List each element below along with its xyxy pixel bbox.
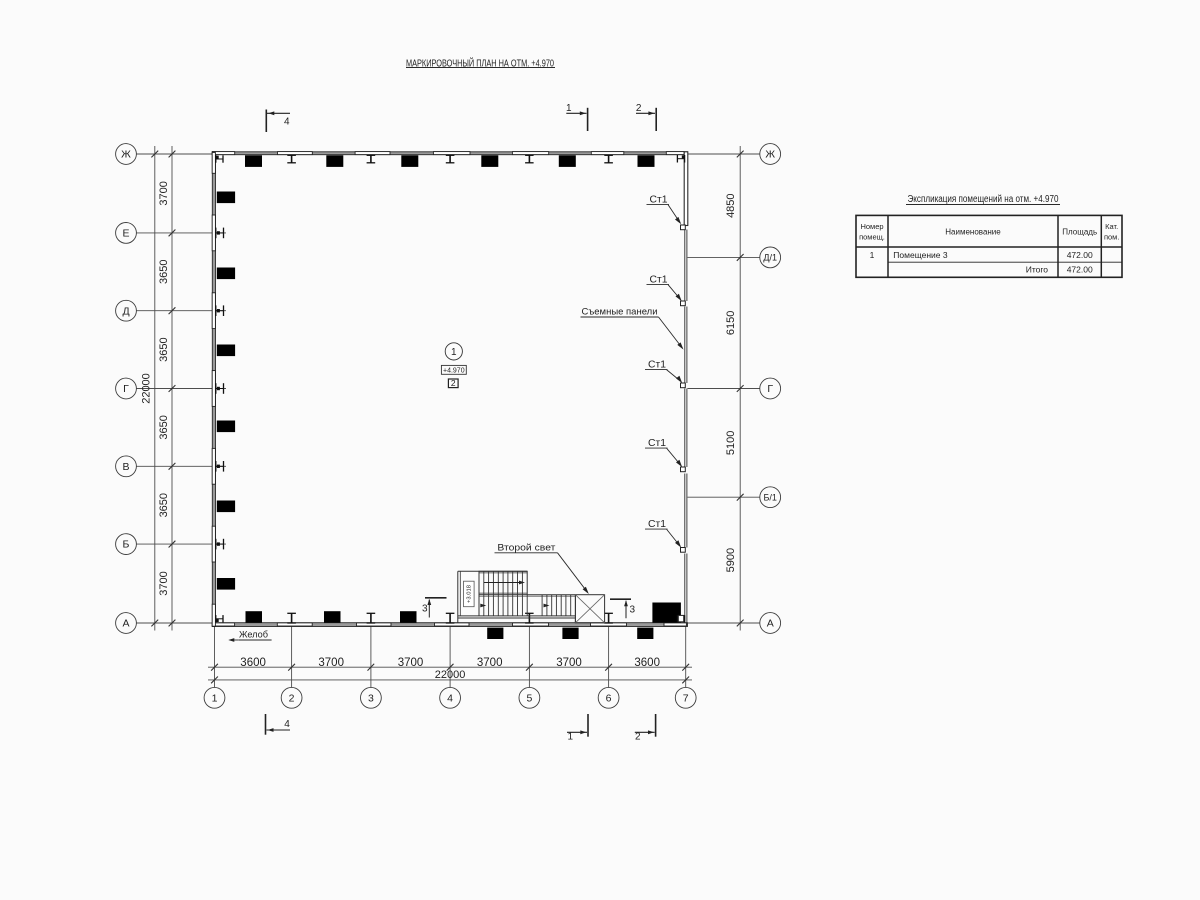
svg-text:Помещение 3: Помещение 3	[893, 250, 948, 260]
svg-text:2: 2	[289, 692, 295, 704]
svg-text:4: 4	[447, 692, 453, 704]
svg-text:3700: 3700	[556, 657, 582, 669]
svg-text:Д/1: Д/1	[763, 253, 777, 263]
svg-text:3700: 3700	[158, 571, 170, 595]
svg-text:3700: 3700	[477, 657, 503, 669]
svg-text:5900: 5900	[725, 548, 737, 572]
svg-text:А: А	[122, 618, 129, 630]
svg-text:3650: 3650	[158, 337, 170, 361]
svg-text:1: 1	[212, 692, 218, 704]
svg-text:3650: 3650	[158, 260, 170, 284]
svg-text:В: В	[122, 461, 129, 473]
svg-text:3650: 3650	[158, 493, 170, 517]
svg-text:Экспликация помещений на отм.: Экспликация помещений на отм. +4.970	[908, 194, 1059, 205]
svg-text:Д: Д	[122, 305, 129, 317]
svg-text:3: 3	[368, 692, 374, 704]
svg-text:2: 2	[635, 732, 641, 743]
svg-text:1: 1	[568, 732, 574, 743]
svg-text:+3.018: +3.018	[466, 585, 472, 603]
svg-text:3: 3	[630, 605, 636, 616]
svg-text:Ст1: Ст1	[648, 518, 666, 530]
svg-text:4: 4	[284, 719, 290, 730]
svg-text:472.00: 472.00	[1067, 250, 1093, 260]
svg-text:Г: Г	[123, 383, 129, 395]
svg-text:Г: Г	[767, 383, 773, 395]
svg-text:Кат.: Кат.	[1105, 222, 1118, 231]
svg-text:2: 2	[636, 103, 642, 114]
svg-text:5100: 5100	[725, 431, 737, 455]
svg-text:7: 7	[683, 692, 689, 704]
svg-text:1: 1	[566, 103, 572, 114]
svg-text:472.00: 472.00	[1067, 265, 1093, 275]
svg-text:Ст1: Ст1	[648, 359, 666, 371]
svg-text:2: 2	[451, 378, 456, 388]
svg-text:1: 1	[870, 250, 875, 260]
svg-text:Ст1: Ст1	[650, 194, 668, 206]
svg-text:Площадь: Площадь	[1062, 228, 1097, 237]
svg-text:1: 1	[451, 347, 457, 358]
svg-text:А: А	[767, 618, 774, 630]
svg-text:3: 3	[422, 604, 428, 615]
svg-text:Б: Б	[123, 539, 130, 551]
svg-text:3600: 3600	[634, 657, 660, 669]
svg-text:5: 5	[526, 692, 532, 704]
svg-text:3700: 3700	[318, 657, 344, 669]
svg-text:Б/1: Б/1	[763, 492, 776, 502]
svg-text:22000: 22000	[141, 373, 153, 404]
svg-text:6: 6	[606, 692, 612, 704]
svg-text:пом.: пом.	[1104, 233, 1119, 242]
svg-text:Ж: Ж	[121, 149, 131, 161]
svg-text:Ст1: Ст1	[650, 274, 668, 286]
svg-text:22000: 22000	[435, 669, 466, 681]
svg-text:3700: 3700	[158, 181, 170, 205]
svg-text:Ж: Ж	[765, 149, 775, 161]
svg-text:3700: 3700	[398, 657, 424, 669]
svg-text:Е: Е	[122, 228, 129, 240]
svg-text:+4.970: +4.970	[443, 367, 465, 374]
svg-text:6150: 6150	[725, 311, 737, 335]
svg-text:Номер: Номер	[860, 222, 883, 231]
svg-text:4: 4	[284, 117, 290, 128]
svg-text:3650: 3650	[158, 415, 170, 439]
svg-text:помещ.: помещ.	[859, 233, 885, 242]
svg-text:Ст1: Ст1	[648, 437, 666, 449]
svg-text:Итого: Итого	[1026, 265, 1049, 275]
svg-text:Наименование: Наименование	[945, 228, 1001, 237]
svg-text:3600: 3600	[240, 657, 266, 669]
svg-text:Второй свет: Второй свет	[497, 542, 555, 552]
svg-text:Съемные панели: Съемные панели	[582, 307, 658, 317]
svg-text:Желоб: Желоб	[239, 629, 269, 640]
svg-text:4850: 4850	[725, 193, 737, 217]
